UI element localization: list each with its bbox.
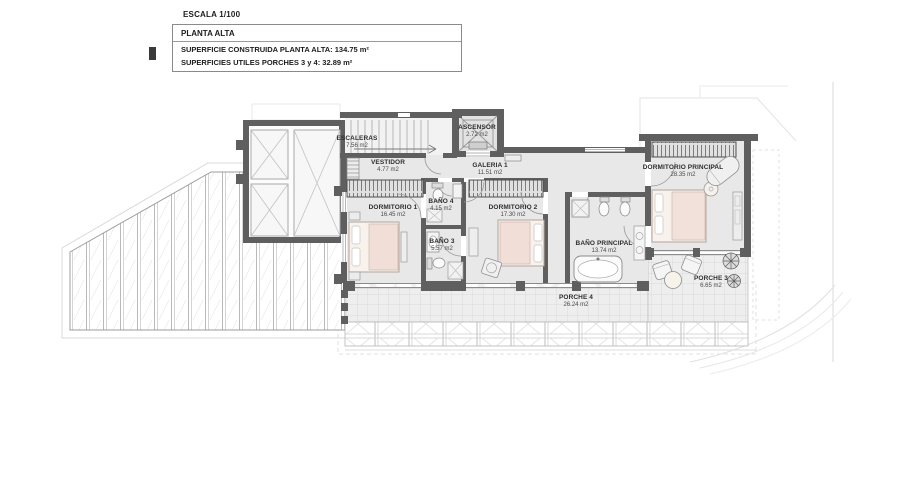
room-label-galeria: GALERIA 111.51 m2	[472, 162, 507, 178]
stair-core	[236, 123, 342, 240]
room-label-escaleras: ESCALERAS7.56 m2	[337, 135, 378, 151]
porch-railing	[345, 322, 748, 346]
room-label-vestidor: VESTIDOR4.77 m2	[371, 159, 405, 175]
room-label-dormitorio-2: DORMITORIO 217.30 m2	[489, 204, 538, 220]
room-label-dormitorio-principal: DORMITORIO PRINCIPAL28.35 m2	[643, 164, 723, 180]
room-label-bano-3: BAÑO 35.57 m2	[429, 238, 454, 254]
porche-4-floor	[345, 288, 648, 322]
title-block: PLANTA ALTA SUPERFICIE CONSTRUIDA PLANTA…	[172, 24, 462, 72]
floor-plan-page: STRAUS INTERNATIONAL strausinternational…	[0, 0, 900, 500]
room-label-porche-4: PORCHE 426.24 m2	[559, 294, 593, 310]
room-label-ascensor: ASCENSOR2.72 m2	[458, 124, 496, 140]
porch-area-line: SUPERFICIES UTILES PORCHES 3 y 4: 32.89 …	[173, 55, 461, 71]
built-area-line: SUPERFICIE CONSTRUIDA PLANTA ALTA: 134.7…	[173, 42, 461, 55]
room-label-bano-4: BAÑO 44.15 m2	[428, 198, 453, 214]
room-label-porche-3: PORCHE 36.65 m2	[694, 275, 728, 291]
room-label-bano-principal: BAÑO PRINCIPAL13.74 m2	[576, 240, 633, 256]
plant-icon	[723, 253, 739, 269]
bed-dormitorio-1	[349, 212, 407, 280]
floor-title: PLANTA ALTA	[173, 25, 461, 42]
title-block-marker	[149, 47, 156, 60]
scale-label: ESCALA 1/100	[183, 10, 240, 19]
room-label-dormitorio-1: DORMITORIO 116.45 m2	[369, 204, 418, 220]
plant-icon	[728, 275, 741, 288]
